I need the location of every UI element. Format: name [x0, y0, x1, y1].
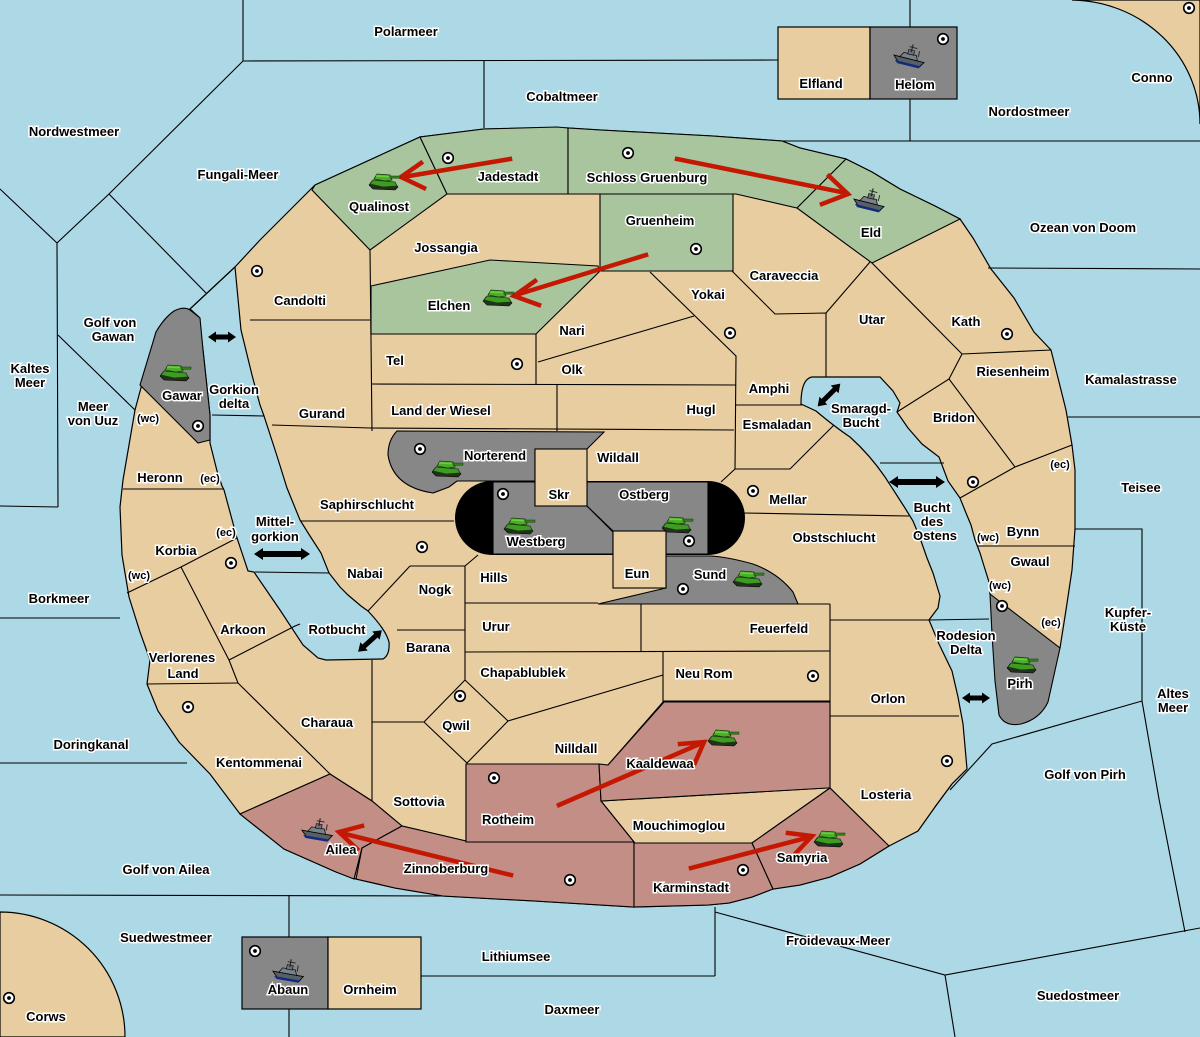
svg-text:Gruenheim: Gruenheim	[626, 213, 695, 228]
svg-text:Bynn: Bynn	[1007, 524, 1040, 539]
svg-text:Candolti: Candolti	[274, 293, 326, 308]
svg-text:Losteria: Losteria	[861, 787, 912, 802]
svg-text:Kaaldewaa: Kaaldewaa	[626, 756, 694, 771]
svg-text:Mittel-: Mittel-	[256, 514, 294, 529]
svg-text:Suedwestmeer: Suedwestmeer	[120, 930, 212, 945]
svg-text:Schloss Gruenburg: Schloss Gruenburg	[587, 170, 708, 185]
svg-text:Cobaltmeer: Cobaltmeer	[526, 89, 598, 104]
svg-text:von Uuz: von Uuz	[68, 413, 119, 428]
svg-text:Teisee: Teisee	[1121, 480, 1161, 495]
svg-text:Doringkanal: Doringkanal	[53, 737, 128, 752]
svg-text:Golf von Pirh: Golf von Pirh	[1044, 767, 1126, 782]
svg-text:Skr: Skr	[549, 487, 570, 502]
svg-text:Amphi: Amphi	[749, 381, 789, 396]
svg-text:Feuerfeld: Feuerfeld	[750, 621, 809, 636]
svg-text:Suedostmeer: Suedostmeer	[1037, 988, 1119, 1003]
svg-text:Altes: Altes	[1157, 686, 1189, 701]
svg-text:Bucht: Bucht	[914, 500, 952, 515]
svg-text:Kentommenai: Kentommenai	[216, 755, 302, 770]
svg-text:Riesenheim: Riesenheim	[977, 364, 1050, 379]
svg-text:Rodesion: Rodesion	[936, 628, 995, 643]
svg-text:Meer: Meer	[78, 399, 108, 414]
svg-text:Conno: Conno	[1131, 70, 1172, 85]
svg-text:Fungali-Meer: Fungali-Meer	[198, 167, 279, 182]
svg-text:Elchen: Elchen	[428, 298, 471, 313]
svg-text:Eun: Eun	[625, 566, 650, 581]
svg-text:Wildall: Wildall	[597, 450, 639, 465]
svg-text:Kupfer-: Kupfer-	[1105, 605, 1151, 620]
svg-text:Gurand: Gurand	[299, 406, 345, 421]
svg-text:Corws: Corws	[26, 1009, 66, 1024]
svg-text:Gorkion: Gorkion	[209, 382, 259, 397]
svg-text:(ec): (ec)	[1050, 459, 1070, 471]
svg-text:(ec): (ec)	[1041, 617, 1061, 629]
svg-text:Froidevaux-Meer: Froidevaux-Meer	[786, 933, 890, 948]
svg-text:Barana: Barana	[406, 640, 451, 655]
svg-text:Meer: Meer	[15, 375, 45, 390]
svg-text:Kamalastrasse: Kamalastrasse	[1085, 372, 1177, 387]
svg-text:Nabai: Nabai	[347, 566, 382, 581]
svg-text:Charaua: Charaua	[301, 715, 354, 730]
svg-text:Helom: Helom	[895, 77, 935, 92]
svg-text:Rotheim: Rotheim	[482, 812, 534, 827]
svg-text:Caraveccia: Caraveccia	[750, 268, 819, 283]
svg-text:Samyria: Samyria	[777, 850, 828, 865]
svg-text:Gwaul: Gwaul	[1010, 554, 1049, 569]
svg-text:Nogk: Nogk	[419, 582, 452, 597]
svg-text:Hugl: Hugl	[687, 402, 716, 417]
svg-text:Orlon: Orlon	[871, 691, 906, 706]
svg-text:Daxmeer: Daxmeer	[545, 1002, 600, 1017]
svg-text:Bridon: Bridon	[933, 410, 975, 425]
svg-text:Chapablublek: Chapablublek	[480, 665, 566, 680]
svg-text:Tel: Tel	[386, 353, 404, 368]
svg-text:Golf von Ailea: Golf von Ailea	[123, 862, 211, 877]
svg-text:Esmaladan: Esmaladan	[743, 417, 812, 432]
svg-text:Abaun: Abaun	[268, 982, 309, 997]
svg-text:Utar: Utar	[859, 312, 885, 327]
svg-text:Eld: Eld	[861, 225, 881, 240]
svg-text:Obstschlucht: Obstschlucht	[792, 530, 876, 545]
svg-text:Yokai: Yokai	[691, 287, 725, 302]
svg-text:Bucht: Bucht	[843, 415, 881, 430]
svg-text:Mellar: Mellar	[769, 492, 807, 507]
svg-text:Ornheim: Ornheim	[343, 982, 396, 997]
svg-text:Ostens: Ostens	[913, 528, 957, 543]
svg-text:Ostberg: Ostberg	[619, 487, 669, 502]
svg-text:Delta: Delta	[950, 642, 983, 657]
svg-text:Küste: Küste	[1110, 619, 1146, 634]
svg-text:Land: Land	[167, 666, 198, 681]
svg-text:(ec): (ec)	[200, 473, 220, 485]
svg-text:Meer: Meer	[1158, 700, 1188, 715]
svg-text:Borkmeer: Borkmeer	[29, 591, 90, 606]
svg-text:Gawar: Gawar	[162, 388, 202, 403]
svg-text:Saphirschlucht: Saphirschlucht	[320, 497, 415, 512]
svg-text:Smaragd-: Smaragd-	[831, 401, 891, 416]
svg-text:Nilldall: Nilldall	[555, 741, 598, 756]
svg-text:Norterend: Norterend	[464, 448, 526, 463]
svg-text:Qwil: Qwil	[442, 718, 469, 733]
svg-text:Golf von: Golf von	[84, 315, 137, 330]
svg-text:Jossangia: Jossangia	[414, 240, 478, 255]
svg-text:Korbia: Korbia	[155, 543, 197, 558]
svg-text:Verlorenes: Verlorenes	[149, 650, 216, 665]
svg-text:Sottovia: Sottovia	[393, 794, 445, 809]
svg-text:(ec): (ec)	[216, 527, 236, 539]
svg-text:Urur: Urur	[482, 619, 509, 634]
svg-text:delta: delta	[219, 396, 250, 411]
svg-text:Land der Wiesel: Land der Wiesel	[391, 403, 491, 418]
svg-text:(wc): (wc)	[128, 570, 150, 582]
svg-text:(wc): (wc)	[977, 532, 999, 544]
svg-text:Polarmeer: Polarmeer	[374, 24, 438, 39]
svg-text:Nordwestmeer: Nordwestmeer	[29, 124, 119, 139]
svg-text:Kath: Kath	[952, 314, 981, 329]
svg-text:Zinnoberburg: Zinnoberburg	[404, 861, 489, 876]
svg-text:(wc): (wc)	[137, 413, 159, 425]
svg-text:gorkion: gorkion	[251, 529, 299, 544]
svg-text:Qualinost: Qualinost	[349, 199, 410, 214]
svg-text:Olk: Olk	[562, 362, 584, 377]
svg-text:Hills: Hills	[480, 570, 507, 585]
svg-text:Sund: Sund	[694, 567, 727, 582]
svg-text:Gawan: Gawan	[92, 329, 135, 344]
svg-text:Ozean von Doom: Ozean von Doom	[1030, 220, 1136, 235]
svg-text:Nari: Nari	[559, 323, 584, 338]
svg-text:Westberg: Westberg	[507, 534, 566, 549]
svg-text:(wc): (wc)	[989, 580, 1011, 592]
svg-text:Jadestadt: Jadestadt	[478, 169, 539, 184]
svg-text:Rotbucht: Rotbucht	[308, 622, 366, 637]
svg-text:Karminstadt: Karminstadt	[653, 880, 730, 895]
svg-text:Kaltes: Kaltes	[10, 361, 49, 376]
svg-text:Arkoon: Arkoon	[220, 622, 266, 637]
svg-text:Mouchimoglou: Mouchimoglou	[633, 818, 725, 833]
svg-text:Ailea: Ailea	[325, 842, 357, 857]
svg-text:Pirh: Pirh	[1007, 676, 1032, 691]
svg-text:Lithiumsee: Lithiumsee	[482, 949, 551, 964]
svg-text:des: des	[921, 514, 943, 529]
svg-text:Elfland: Elfland	[799, 76, 842, 91]
svg-text:Nordostmeer: Nordostmeer	[989, 104, 1070, 119]
svg-text:Neu Rom: Neu Rom	[675, 666, 732, 681]
svg-text:Heronn: Heronn	[137, 470, 183, 485]
